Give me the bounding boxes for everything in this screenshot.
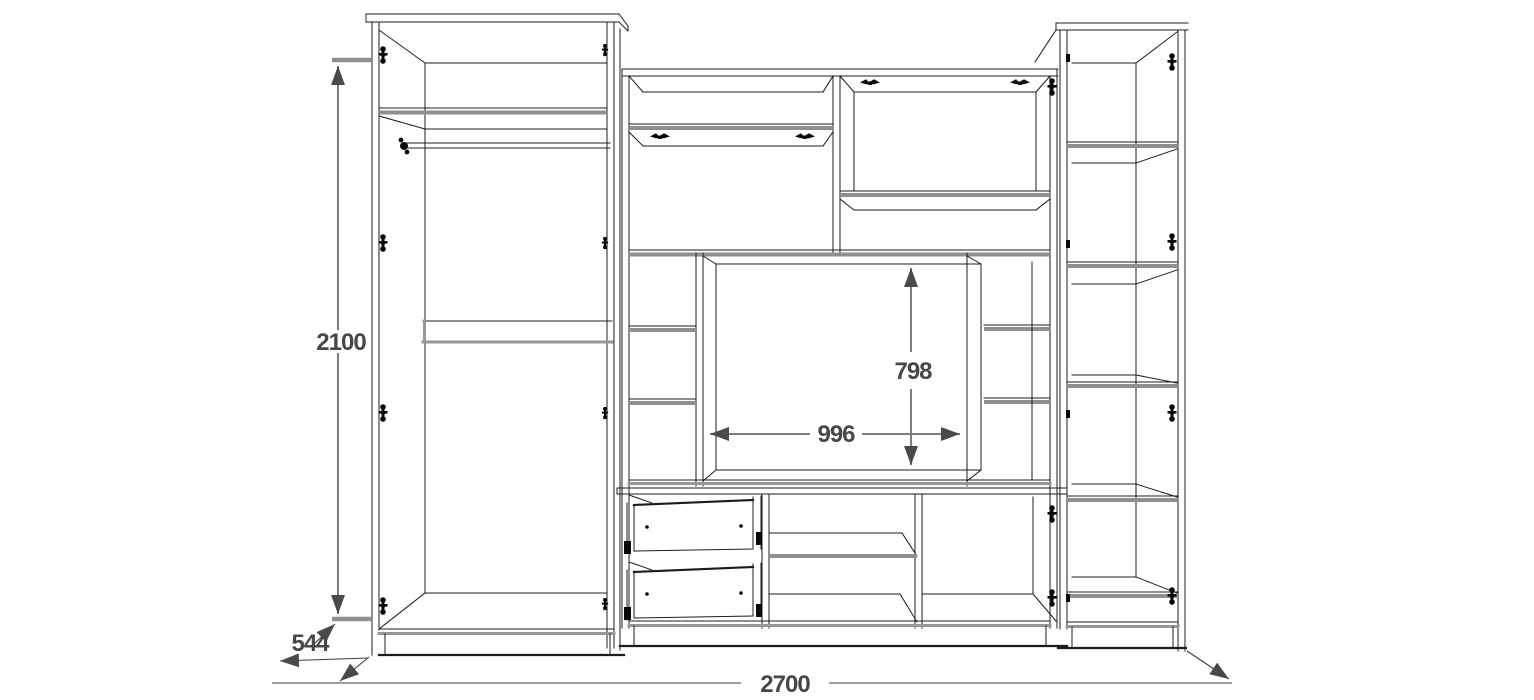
hinge-icon <box>379 46 388 64</box>
drawer-slide-icon <box>624 541 631 554</box>
wardrobe-section <box>366 14 628 655</box>
drawer-bottom <box>627 562 761 620</box>
dimension-annotations: 2100 544 2700 798 996 <box>272 60 1232 698</box>
height-dimension: 2100 <box>316 60 372 619</box>
drawer-slide-icon <box>624 607 631 620</box>
hinge-icon <box>860 79 880 85</box>
hinge-icon <box>1168 53 1177 71</box>
hinge-icon <box>650 133 670 139</box>
hinge-icon <box>379 404 388 422</box>
drawer-slide-icon <box>756 532 762 545</box>
hinge-icon <box>795 133 815 139</box>
niche-height-dimension-label: 798 <box>894 358 932 385</box>
cam-lock-icon <box>1066 410 1070 418</box>
hinge-icon <box>1048 505 1057 523</box>
furniture-technical-drawing: 2100 544 2700 798 996 <box>0 0 1534 700</box>
cam-lock-icon <box>1066 594 1070 602</box>
hinge-icon <box>1010 79 1030 85</box>
height-dimension-label: 2100 <box>316 329 366 356</box>
drawer-slide-icon <box>756 604 762 617</box>
niche-width-dimension-label: 996 <box>817 421 855 448</box>
tv-unit-section <box>617 69 1067 646</box>
hinge-icon <box>1048 78 1057 96</box>
hinge-icon <box>379 597 388 615</box>
niche-width-dimension: 996 <box>710 421 960 448</box>
drawing-canvas: 2100 544 2700 798 996 <box>0 0 1534 700</box>
cam-lock-icon <box>1066 240 1070 248</box>
rod-bracket-icon <box>399 138 410 155</box>
depth-dimension-label: 544 <box>291 630 330 657</box>
hinge-icon <box>1048 589 1057 607</box>
hinge-icon <box>1168 404 1177 422</box>
width-dimension-label: 2700 <box>760 671 810 698</box>
drawer-top <box>627 495 761 552</box>
cam-lock-icon <box>1066 54 1070 62</box>
hinge-icon <box>1168 233 1177 251</box>
hinge-icon <box>379 234 388 252</box>
shelf-column-section <box>1035 23 1188 651</box>
depth-dimension: 544 <box>280 624 368 661</box>
niche-height-dimension: 798 <box>894 268 932 465</box>
width-dimension: 2700 <box>272 651 1232 698</box>
